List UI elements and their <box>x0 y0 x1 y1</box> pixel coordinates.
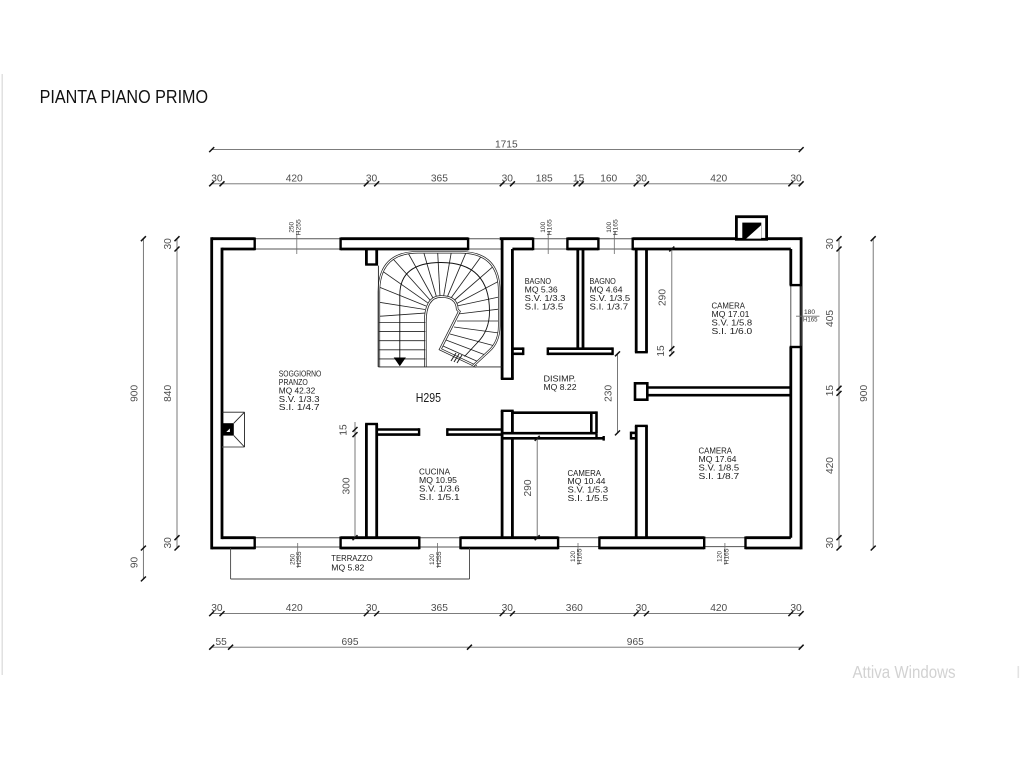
svg-text:300: 300 <box>342 477 353 494</box>
svg-text:30: 30 <box>366 173 378 184</box>
svg-text:S.I. 1/4.7: S.I. 1/4.7 <box>279 403 320 412</box>
svg-text:1715: 1715 <box>495 139 518 150</box>
svg-text:900: 900 <box>859 385 870 402</box>
svg-text:30: 30 <box>825 238 836 250</box>
svg-text:S.I. 1/5.1: S.I. 1/5.1 <box>419 493 460 502</box>
svg-text:55: 55 <box>216 637 228 648</box>
svg-text:365: 365 <box>431 603 448 614</box>
svg-text:230: 230 <box>604 385 615 402</box>
svg-text:15: 15 <box>656 345 667 357</box>
svg-text:30: 30 <box>502 603 514 614</box>
svg-text:15: 15 <box>339 424 350 436</box>
svg-text:PIANTA PIANO PRIMO: PIANTA PIANO PRIMO <box>40 87 209 107</box>
svg-text:MQ 8.22: MQ 8.22 <box>544 383 578 392</box>
svg-text:420: 420 <box>825 457 836 474</box>
svg-text:H295: H295 <box>416 390 441 405</box>
svg-text:30: 30 <box>163 537 174 549</box>
svg-text:365: 365 <box>431 173 448 184</box>
svg-text:185: 185 <box>536 173 553 184</box>
svg-text:H165: H165 <box>803 317 818 324</box>
svg-text:H255: H255 <box>296 551 303 568</box>
svg-text:290: 290 <box>523 479 534 496</box>
svg-text:15: 15 <box>825 385 836 397</box>
svg-text:15: 15 <box>573 173 585 184</box>
svg-text:S.I. 1/5.5: S.I. 1/5.5 <box>568 494 609 503</box>
svg-text:90: 90 <box>130 557 141 569</box>
svg-text:S.I. 1/8.7: S.I. 1/8.7 <box>699 472 740 481</box>
svg-text:H165: H165 <box>547 219 554 236</box>
svg-text:S.I. 1/3.5: S.I. 1/3.5 <box>525 302 564 311</box>
svg-text:TERRAZZO: TERRAZZO <box>331 554 373 563</box>
svg-text:420: 420 <box>710 603 727 614</box>
svg-text:840: 840 <box>163 385 174 402</box>
svg-text:30: 30 <box>636 603 648 614</box>
svg-text:H255: H255 <box>436 551 443 568</box>
svg-text:MQ 5.82: MQ 5.82 <box>331 563 365 572</box>
svg-text:405: 405 <box>825 310 836 327</box>
svg-text:420: 420 <box>286 173 303 184</box>
svg-text:30: 30 <box>366 603 378 614</box>
svg-text:S.I. 1/3.7: S.I. 1/3.7 <box>590 302 629 311</box>
svg-text:Attiva Windows: Attiva Windows <box>853 662 956 682</box>
svg-text:H165: H165 <box>613 219 620 236</box>
svg-text:30: 30 <box>163 238 174 250</box>
svg-text:160: 160 <box>600 173 617 184</box>
svg-text:30: 30 <box>825 537 836 549</box>
svg-text:H165: H165 <box>576 548 583 565</box>
svg-text:965: 965 <box>627 637 644 648</box>
svg-text:30: 30 <box>211 173 223 184</box>
svg-text:30: 30 <box>790 603 802 614</box>
svg-text:H165: H165 <box>723 548 730 565</box>
svg-text:S.I. 1/6.0: S.I. 1/6.0 <box>712 327 753 336</box>
svg-text:420: 420 <box>710 173 727 184</box>
svg-text:290: 290 <box>658 289 669 306</box>
svg-text:420: 420 <box>286 603 303 614</box>
svg-text:360: 360 <box>566 603 583 614</box>
svg-text:695: 695 <box>342 637 359 648</box>
svg-text:900: 900 <box>130 385 141 402</box>
svg-text:30: 30 <box>502 173 514 184</box>
svg-text:H255: H255 <box>295 219 302 236</box>
svg-text:180: 180 <box>804 309 816 316</box>
svg-text:30: 30 <box>790 173 802 184</box>
svg-text:30: 30 <box>636 173 648 184</box>
svg-text:30: 30 <box>211 603 223 614</box>
